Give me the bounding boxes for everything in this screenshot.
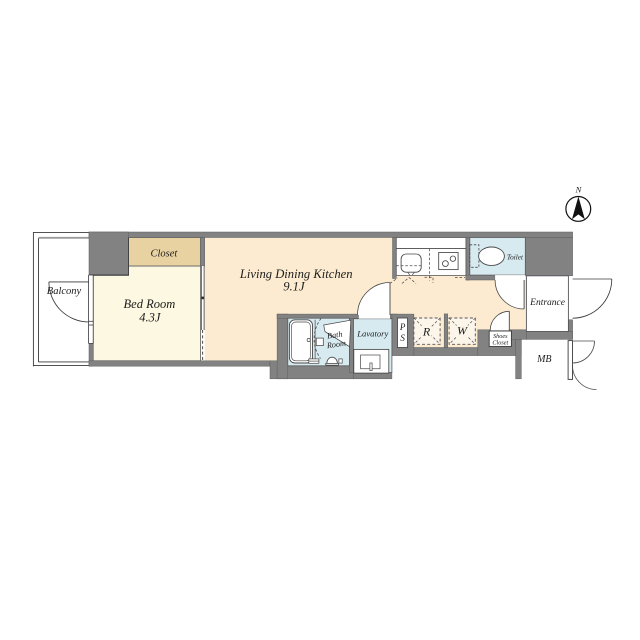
svg-text:R: R: [422, 324, 431, 338]
svg-text:Toilet: Toilet: [507, 253, 524, 261]
svg-text:P: P: [399, 322, 406, 332]
svg-text:Lavatory: Lavatory: [356, 328, 388, 338]
svg-text:Entrance: Entrance: [529, 298, 565, 308]
svg-text:MB: MB: [536, 354, 551, 365]
svg-text:Closet: Closet: [150, 249, 178, 260]
svg-text:Balcony: Balcony: [47, 286, 82, 297]
svg-text:9.1J: 9.1J: [283, 280, 306, 294]
svg-text:Closet: Closet: [492, 340, 508, 347]
svg-text:4.3J: 4.3J: [139, 311, 162, 325]
svg-text:Bed Room: Bed Room: [124, 297, 176, 311]
svg-text:S: S: [400, 333, 405, 343]
svg-text:W: W: [457, 324, 468, 338]
